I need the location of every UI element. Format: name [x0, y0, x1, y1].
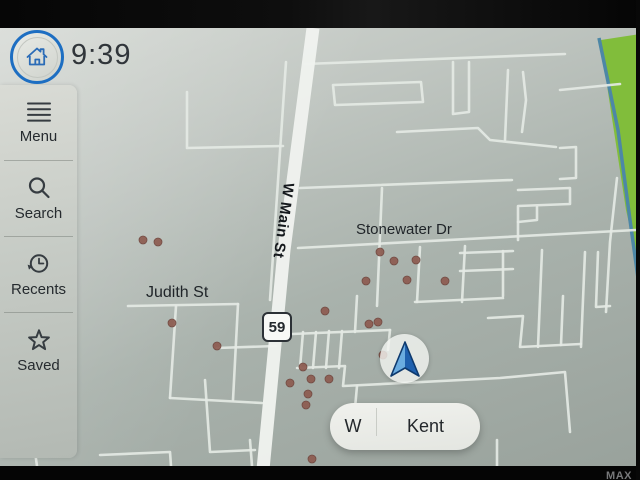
sidebar: Menu Search Recents Saved — [0, 85, 77, 458]
location-pill[interactable]: W Kent — [330, 403, 480, 450]
hamburger-icon — [25, 100, 53, 124]
map-canvas[interactable] — [0, 28, 640, 466]
top-bezel — [0, 0, 640, 28]
home-button[interactable] — [10, 30, 64, 84]
street-label-stonewater: Stonewater Dr — [356, 221, 452, 238]
sidebar-item-recents[interactable]: Recents — [0, 237, 77, 312]
sidebar-item-label: Search — [15, 205, 63, 222]
current-location-indicator — [380, 334, 429, 383]
sidebar-item-saved[interactable]: Saved — [0, 313, 77, 388]
history-icon — [25, 251, 52, 277]
home-icon — [24, 45, 50, 69]
street-label-judith: Judith St — [146, 284, 208, 302]
route-shield-59: 59 — [262, 312, 292, 342]
right-bezel — [636, 0, 640, 480]
pill-city-label: Kent — [377, 416, 480, 437]
star-icon — [26, 328, 52, 353]
sidebar-item-label: Saved — [17, 357, 60, 374]
bottom-bezel: MAX — [0, 466, 640, 480]
sidebar-item-label: Recents — [11, 281, 66, 298]
pill-direction-label: W — [330, 416, 376, 437]
route-shield-number: 59 — [269, 319, 286, 336]
infotainment-screen: Stonewater Dr Judith St W Main St 59 W K… — [0, 0, 640, 480]
sidebar-item-search[interactable]: Search — [0, 161, 77, 236]
sidebar-item-label: Menu — [20, 128, 58, 145]
home-button-inner-ring — [17, 37, 58, 78]
bezel-max-label: MAX — [606, 470, 632, 480]
clock: 9:39 — [71, 39, 131, 72]
navigation-arrow-icon — [388, 340, 422, 378]
sidebar-item-menu[interactable]: Menu — [0, 85, 77, 160]
search-icon — [26, 175, 52, 201]
